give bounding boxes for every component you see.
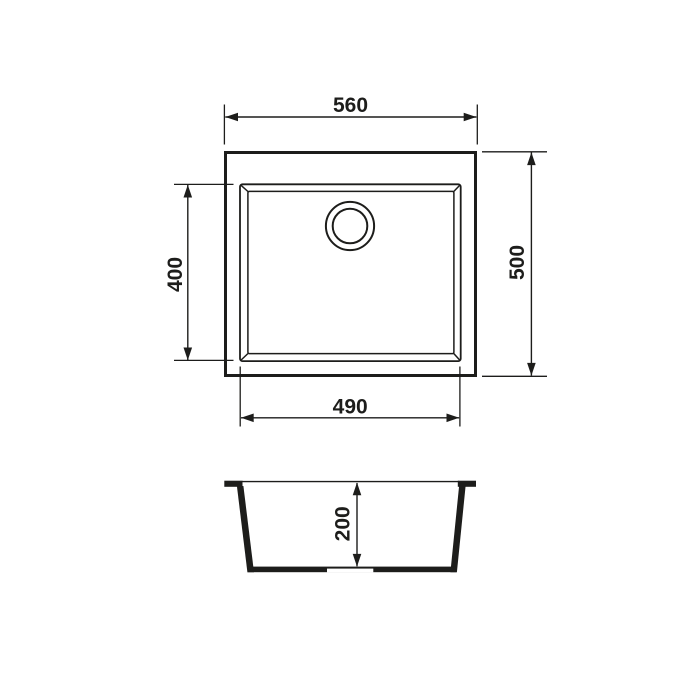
svg-text:500: 500 — [506, 245, 529, 280]
svg-text:490: 490 — [333, 396, 368, 419]
svg-text:560: 560 — [333, 94, 368, 117]
svg-text:200: 200 — [331, 506, 354, 541]
svg-text:400: 400 — [164, 257, 187, 292]
